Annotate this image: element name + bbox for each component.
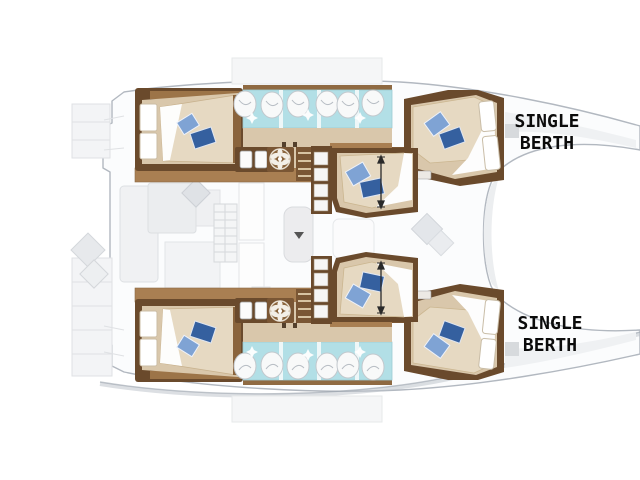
single-berth-label-top-line2: BERTH [501,133,593,155]
salon-table [284,207,313,262]
single-berth-label-bottom: SINGLE BERTH [504,313,596,357]
salon-stairs [214,204,237,262]
single-berth-label-top: SINGLE BERTH [501,111,593,155]
single-berth-label-top-line1: SINGLE [501,111,593,133]
floorplan-svg [0,0,640,480]
single-berth-label-bottom-line2: BERTH [504,335,596,357]
floorplan-screenshot: SINGLE BERTH SINGLE BERTH [0,0,640,480]
galley-counter-a [239,183,264,240]
single-berth-label-bottom-line1: SINGLE [504,313,596,335]
